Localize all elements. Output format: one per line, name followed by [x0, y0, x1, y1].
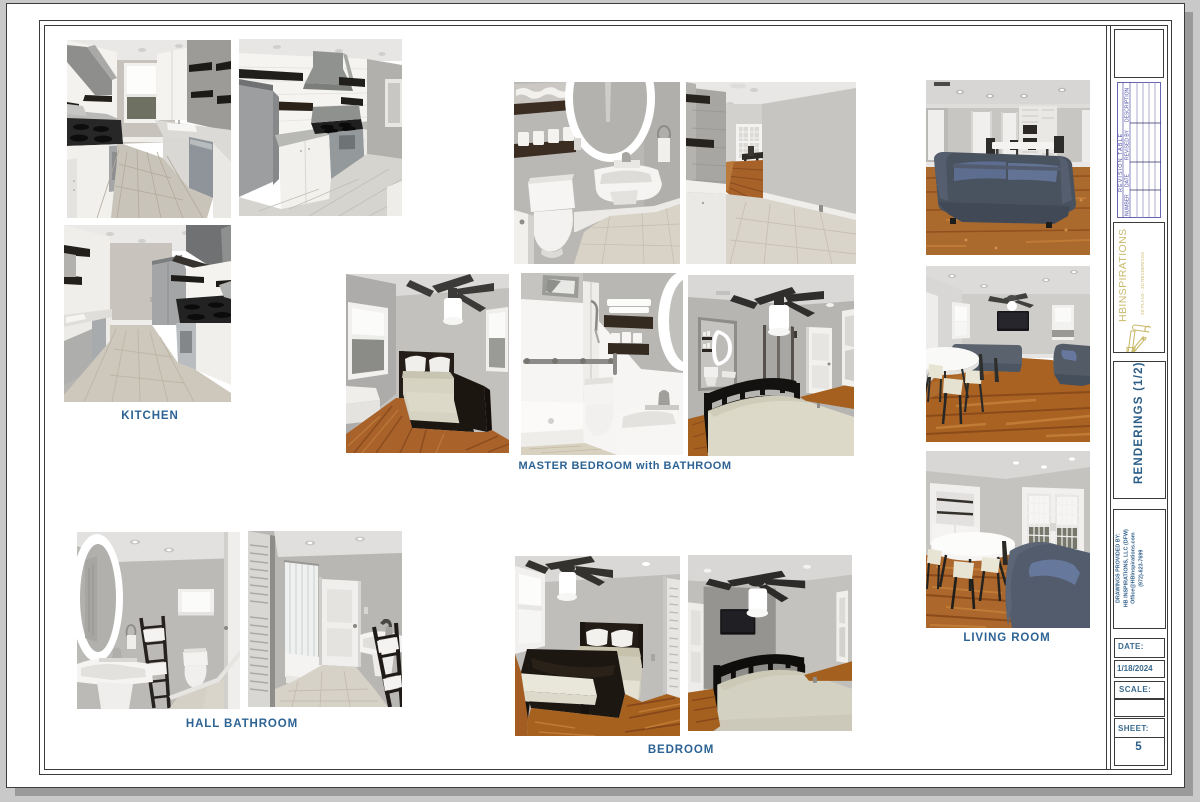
- svg-text:REVISED BY: REVISED BY: [1125, 129, 1131, 160]
- svg-text:HBINSPIRATIONS: HBINSPIRATIONS: [1117, 228, 1129, 322]
- svg-text:2D PLANS - 3D RENDERINGS: 2D PLANS - 3D RENDERINGS: [1140, 252, 1145, 315]
- svg-text:REVISION TABLE: REVISION TABLE: [1118, 133, 1124, 192]
- svg-text:DESCRIPTION: DESCRIPTION: [1125, 87, 1131, 122]
- svg-text:NUMBER: NUMBER: [1125, 194, 1131, 216]
- svg-text:DATE: DATE: [1125, 173, 1131, 187]
